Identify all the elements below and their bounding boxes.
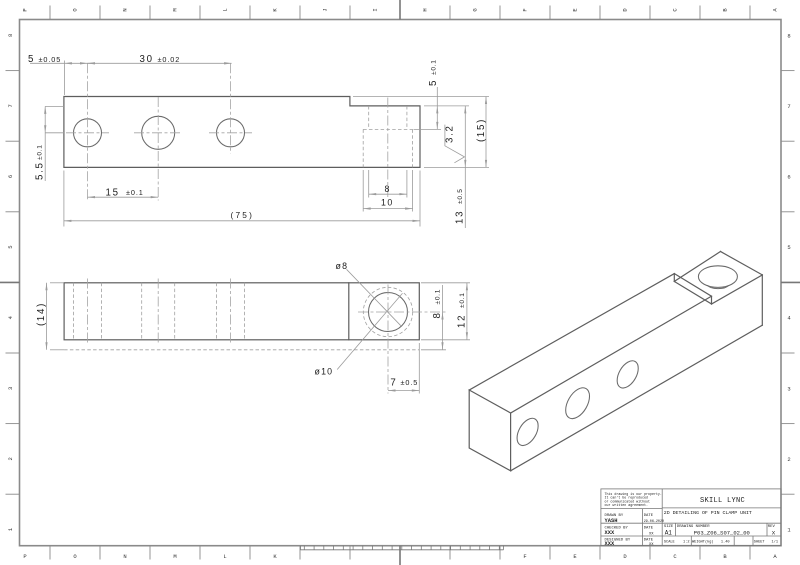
svg-text:±0.5: ±0.5 — [457, 188, 464, 204]
svg-text:30: 30 — [140, 54, 154, 65]
svg-text:(15): (15) — [476, 118, 487, 142]
svg-text:8: 8 — [385, 184, 391, 194]
svg-text:±0.1: ±0.1 — [431, 59, 438, 75]
svg-text:YASH: YASH — [605, 518, 618, 524]
svg-text:X: X — [772, 530, 776, 537]
svg-text:P03_Z06_S07_02_00: P03_Z06_S07_02_00 — [694, 530, 750, 537]
svg-text:DATE: DATE — [644, 526, 654, 530]
svg-text:L: L — [223, 553, 226, 560]
svg-text:6: 6 — [787, 174, 790, 181]
svg-text:XX: XX — [649, 543, 654, 547]
svg-text:10: 10 — [381, 198, 394, 208]
svg-text:F: F — [522, 8, 529, 11]
svg-text:1:2: 1:2 — [683, 541, 689, 545]
svg-text:J: J — [322, 8, 329, 11]
svg-text:REV: REV — [768, 525, 776, 529]
svg-text:1.40: 1.40 — [721, 541, 730, 545]
svg-text:15: 15 — [106, 187, 120, 198]
svg-text:I: I — [372, 8, 379, 11]
svg-text:L: L — [222, 8, 229, 11]
svg-text:ø10: ø10 — [315, 367, 334, 377]
svg-text:±0.1: ±0.1 — [126, 188, 144, 197]
svg-text:8: 8 — [7, 34, 14, 37]
svg-text:A1: A1 — [665, 530, 673, 537]
svg-text:29-06-2020: 29-06-2020 — [644, 520, 664, 524]
svg-text:XX: XX — [649, 533, 654, 537]
svg-text:(75): (75) — [231, 210, 255, 220]
svg-text:8: 8 — [432, 311, 443, 318]
svg-text:F: F — [523, 553, 526, 560]
svg-text:±0.1: ±0.1 — [37, 144, 44, 160]
svg-text:±0.5: ±0.5 — [401, 378, 419, 387]
svg-text:±0.1: ±0.1 — [435, 289, 442, 305]
svg-text:N: N — [123, 553, 126, 560]
svg-text:5: 5 — [428, 79, 439, 86]
svg-text:XXX: XXX — [605, 530, 615, 536]
svg-text:SCALE: SCALE — [664, 541, 675, 545]
svg-text:N: N — [122, 8, 129, 11]
svg-text:H: H — [422, 8, 429, 11]
svg-text:3: 3 — [7, 387, 14, 390]
svg-text:±0.02: ±0.02 — [158, 55, 181, 64]
svg-text:P: P — [22, 8, 29, 11]
svg-text:±0.05: ±0.05 — [39, 55, 62, 64]
svg-text:2D DETAILING OF PIN CLAMP UNIT: 2D DETAILING OF PIN CLAMP UNIT — [664, 510, 752, 516]
svg-text:8: 8 — [787, 32, 790, 39]
svg-text:SHEET: SHEET — [754, 541, 766, 545]
svg-text:(14): (14) — [36, 302, 47, 326]
svg-text:our written agreement.: our written agreement. — [605, 503, 649, 507]
svg-text:5: 5 — [28, 54, 35, 65]
svg-text:G: G — [472, 8, 479, 11]
svg-text:M: M — [172, 8, 179, 11]
svg-text:XXX: XXX — [605, 541, 615, 547]
svg-text:1/1: 1/1 — [772, 540, 778, 545]
svg-text:5: 5 — [787, 244, 790, 251]
svg-text:ø8: ø8 — [336, 261, 349, 271]
svg-text:3: 3 — [787, 385, 790, 392]
svg-text:7: 7 — [787, 103, 790, 110]
svg-text:SKILL LYNC: SKILL LYNC — [700, 497, 745, 505]
svg-text:6: 6 — [7, 175, 14, 178]
svg-text:12: 12 — [457, 314, 468, 328]
svg-text:2: 2 — [787, 456, 790, 463]
svg-text:3.2: 3.2 — [445, 124, 456, 143]
svg-text:P: P — [23, 553, 26, 560]
svg-text:5.5: 5.5 — [35, 161, 46, 180]
svg-text:SIZE: SIZE — [664, 525, 674, 529]
svg-text:DRAWING NUMBER: DRAWING NUMBER — [677, 525, 710, 529]
svg-text:DATE: DATE — [644, 538, 654, 542]
svg-text:DATE: DATE — [644, 514, 654, 518]
svg-text:13: 13 — [455, 210, 466, 224]
svg-text:5: 5 — [7, 245, 14, 248]
svg-text:7: 7 — [7, 104, 14, 107]
svg-text:±0.1: ±0.1 — [459, 292, 466, 308]
svg-text:M: M — [173, 553, 176, 560]
svg-text:WEIGHT(kg): WEIGHT(kg) — [692, 540, 714, 545]
svg-text:2: 2 — [7, 457, 14, 460]
svg-text:7: 7 — [390, 377, 397, 388]
